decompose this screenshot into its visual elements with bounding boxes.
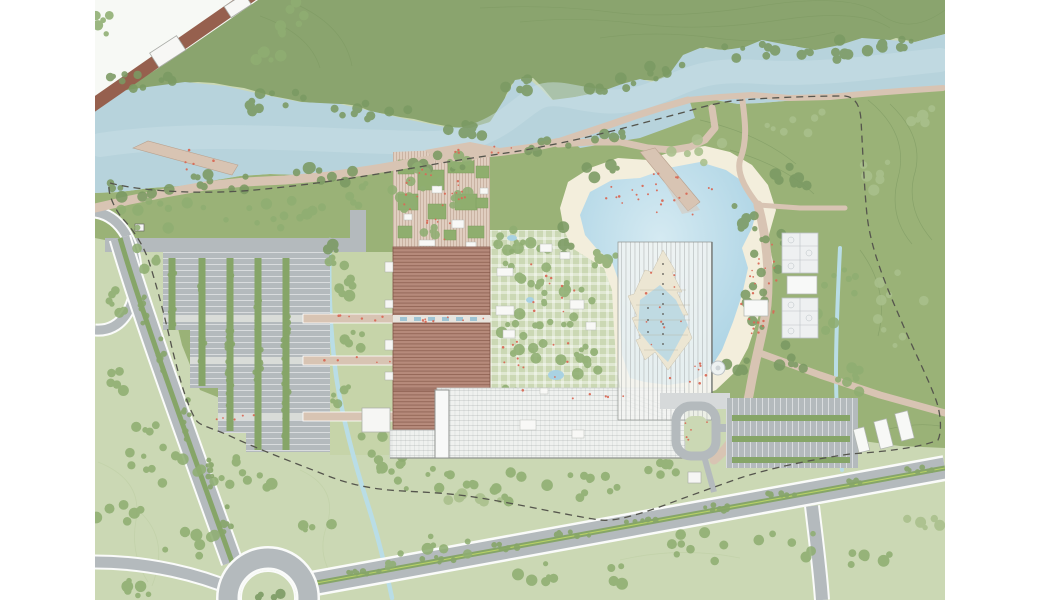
court-pavilion-west — [744, 300, 768, 316]
pool-feature-circle — [711, 361, 725, 375]
hall-middle — [393, 323, 490, 390]
site-plan-stage — [0, 0, 1040, 600]
court-cluster-north — [782, 233, 818, 273]
entrance-tower — [435, 390, 449, 458]
bus-parking — [726, 398, 858, 468]
court-pavilion — [787, 276, 817, 294]
roundabout — [228, 558, 308, 600]
drop-off-kiosk — [688, 472, 701, 483]
drop-off-island — [684, 416, 708, 446]
hall-north — [393, 247, 490, 315]
site-plan-map — [0, 0, 1040, 600]
court-cluster-south — [782, 298, 818, 338]
west-annex-building — [362, 408, 390, 432]
hall-south — [393, 390, 437, 430]
